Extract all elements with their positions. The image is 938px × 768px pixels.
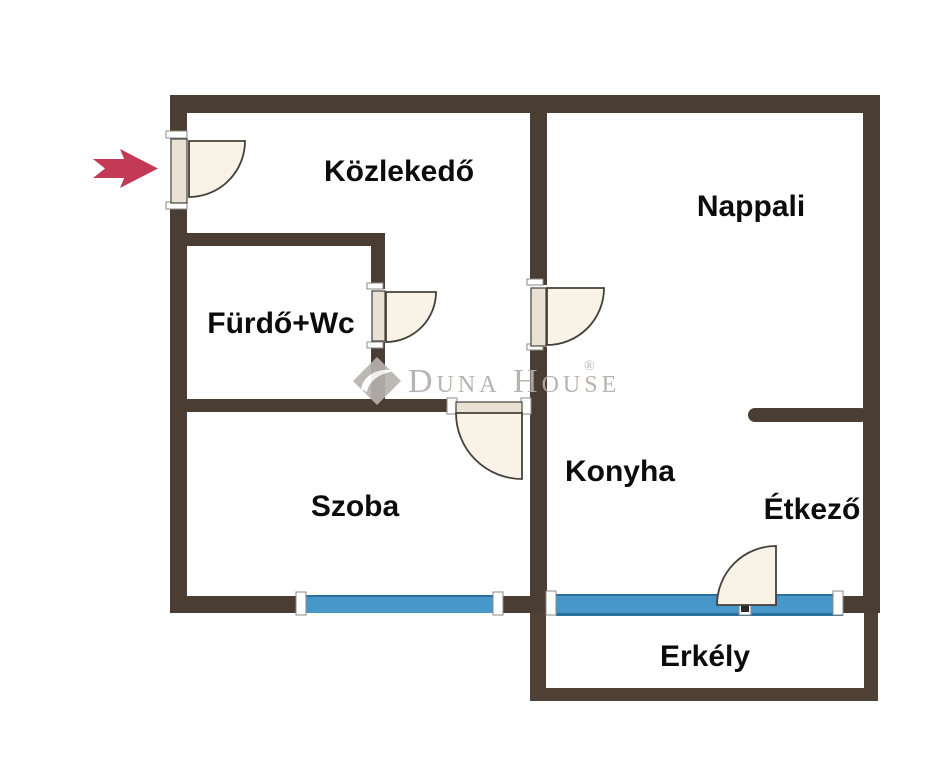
window-cap <box>493 592 503 615</box>
window-balcony-frame <box>556 594 838 596</box>
wall-bottom-left <box>170 596 298 613</box>
wall-balcony-left <box>530 613 546 693</box>
wall-dining-stub <box>748 408 868 422</box>
room-label-kozlekedo: Közlekedő <box>324 155 474 188</box>
window-szoba-frame <box>305 595 495 597</box>
room-label-nappali: Nappali <box>697 190 805 223</box>
wall-bottom-right <box>842 596 863 613</box>
bathroom-door-panel <box>372 291 385 341</box>
door-hinge-mark <box>367 283 383 289</box>
window-szoba <box>305 596 495 613</box>
floorplan-canvas: Duna House ® Közlekedő Nappali Fürdő+Wc … <box>0 0 938 768</box>
wall-balcony-right <box>864 613 878 693</box>
door-hinge-mark <box>166 131 187 138</box>
wall-bathroom-right-upper <box>371 233 385 289</box>
registered-trademark-symbol: ® <box>584 359 595 374</box>
room-label-etkezo: Étkező <box>764 492 861 526</box>
wall-hall-bottom <box>170 399 453 412</box>
window-cap <box>546 591 556 615</box>
room-label-furdo-wc: Fürdő+Wc <box>207 307 355 340</box>
floorplan-drawing: Duna House ® Közlekedő Nappali Fürdő+Wc … <box>0 0 938 768</box>
door-hinge-mark <box>527 279 543 285</box>
wall-top <box>170 95 880 113</box>
room-label-erkely: Erkély <box>660 640 750 673</box>
entrance-door-panel <box>171 139 187 203</box>
wall-divider-upper <box>530 95 547 285</box>
window-balcony <box>556 595 838 613</box>
room-label-konyha: Konyha <box>565 455 675 488</box>
door-hinge-mark <box>367 342 383 348</box>
wall-right <box>863 95 880 613</box>
window-cap <box>833 591 843 615</box>
wall-bathroom-top <box>170 233 385 246</box>
room-label-szoba: Szoba <box>311 490 400 523</box>
kitchen-door-panel <box>531 288 546 346</box>
wall-balcony-bottom <box>530 688 878 701</box>
szoba-door-panel <box>456 402 522 413</box>
window-cap <box>296 592 306 615</box>
